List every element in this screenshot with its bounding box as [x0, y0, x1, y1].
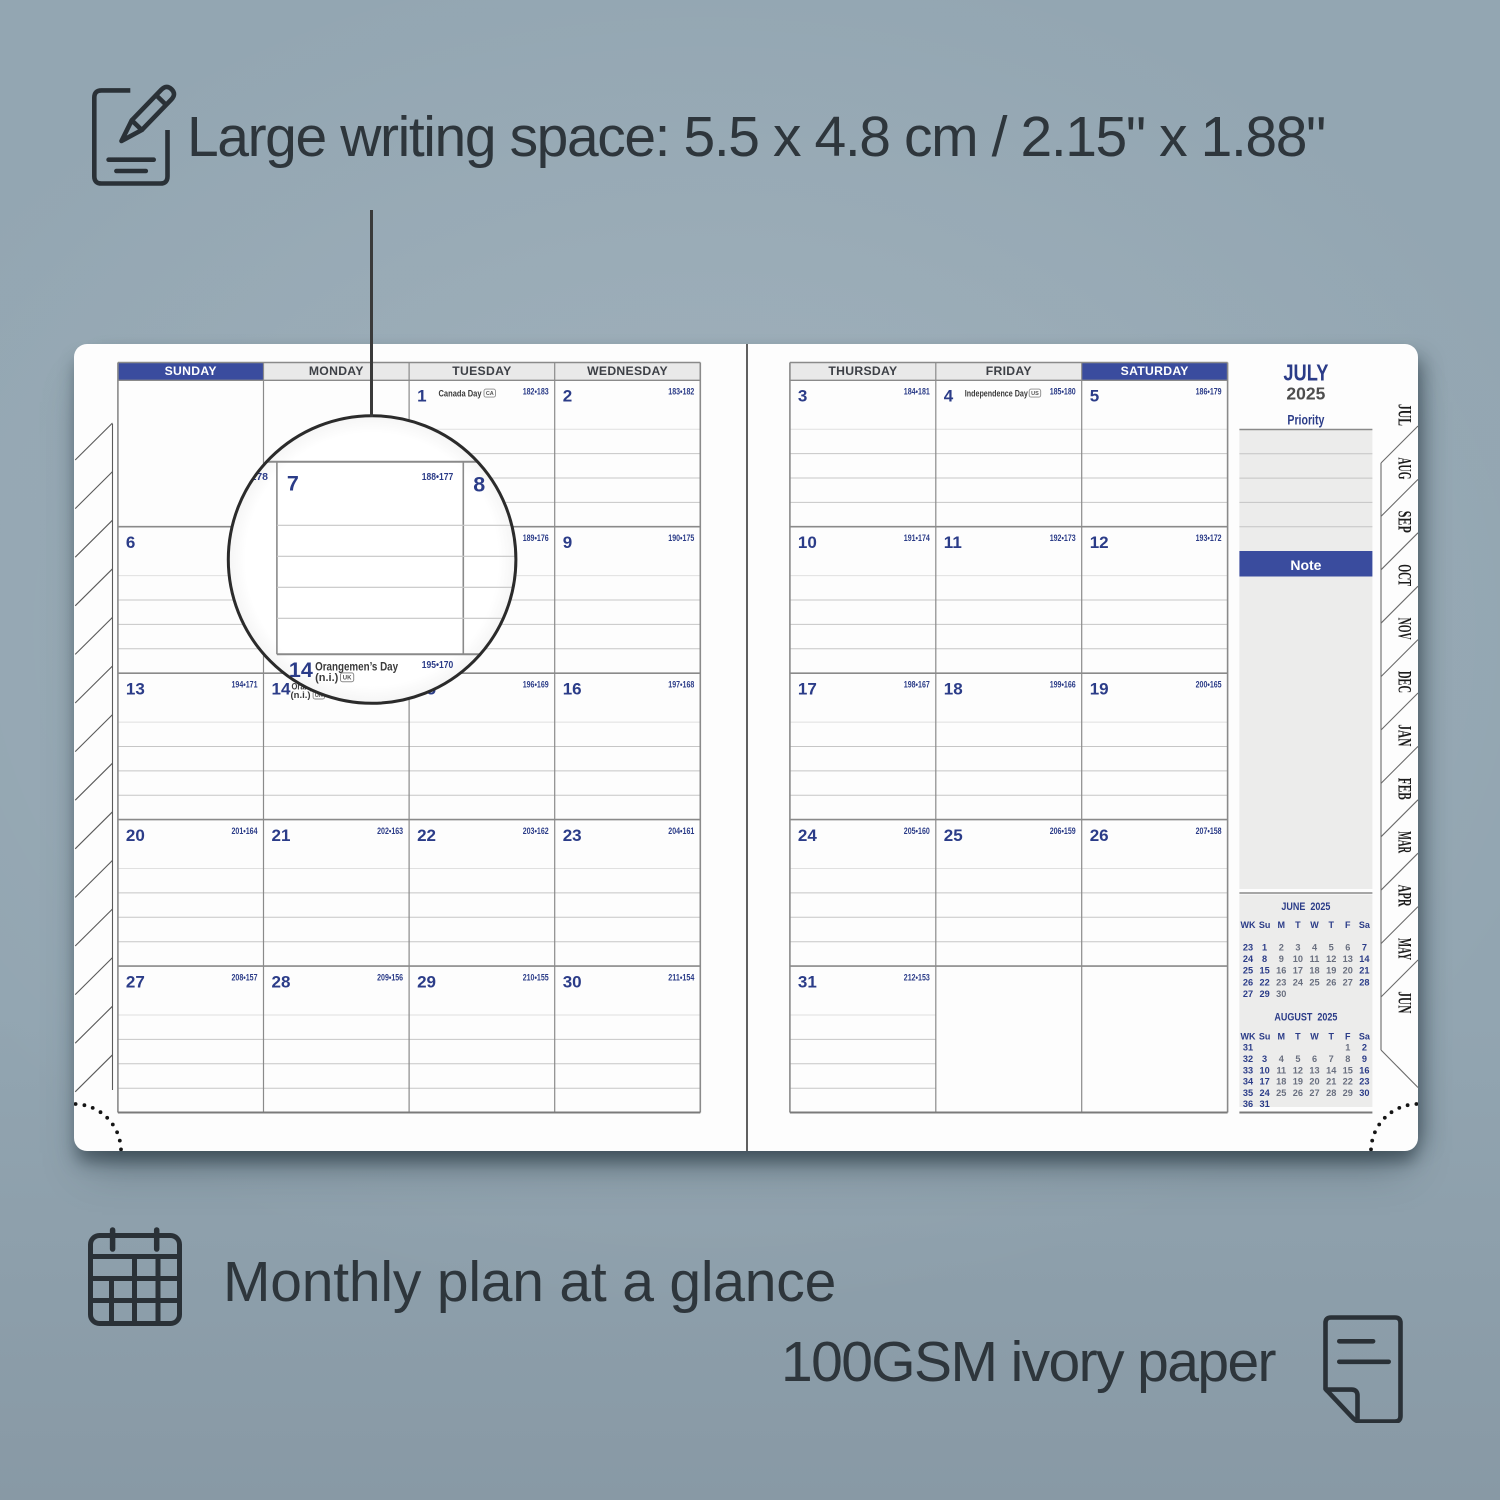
svg-text:189•176: 189•176: [523, 533, 549, 543]
svg-text:25: 25: [944, 826, 963, 845]
svg-text:27: 27: [126, 973, 145, 992]
svg-text:206•159: 206•159: [1050, 826, 1076, 836]
svg-text:182•183: 182•183: [523, 387, 549, 397]
svg-text:W: W: [1310, 920, 1319, 930]
svg-text:31: 31: [1259, 1099, 1269, 1109]
svg-text:30: 30: [1359, 1088, 1369, 1098]
svg-text:23: 23: [1276, 977, 1286, 987]
svg-text:15: 15: [1259, 966, 1269, 976]
svg-text:1: 1: [1345, 1043, 1350, 1053]
svg-text:19: 19: [1326, 966, 1336, 976]
svg-text:2: 2: [1279, 942, 1284, 952]
svg-text:202•163: 202•163: [377, 826, 403, 836]
svg-text:28: 28: [1326, 1088, 1336, 1098]
svg-text:JUN: JUN: [1394, 991, 1415, 1013]
svg-text:191•174: 191•174: [904, 533, 930, 543]
svg-text:M: M: [1278, 1032, 1286, 1042]
svg-text:TUESDAY: TUESDAY: [452, 364, 511, 378]
svg-text:22: 22: [1343, 1077, 1353, 1087]
svg-text:AUGUST 2025: AUGUST 2025: [1274, 1011, 1337, 1023]
svg-text:JUNE 2025: JUNE 2025: [1281, 901, 1330, 913]
svg-text:7: 7: [1362, 942, 1367, 952]
svg-text:190•175: 190•175: [668, 533, 694, 543]
svg-text:F: F: [1345, 920, 1351, 930]
svg-text:15: 15: [1343, 1065, 1353, 1075]
svg-text:19: 19: [1090, 680, 1109, 699]
svg-text:MAR: MAR: [1394, 831, 1415, 853]
svg-text:14: 14: [1359, 954, 1370, 964]
svg-text:WK: WK: [1241, 920, 1256, 930]
svg-text:200•165: 200•165: [1196, 680, 1222, 690]
svg-text:T: T: [1328, 920, 1334, 930]
svg-text:18: 18: [944, 680, 963, 699]
svg-text:6: 6: [1345, 942, 1350, 952]
svg-text:12: 12: [1090, 533, 1109, 552]
svg-text:32: 32: [1243, 1054, 1253, 1064]
svg-text:SEP: SEP: [1394, 511, 1415, 533]
svg-text:22: 22: [1259, 977, 1269, 987]
svg-text:195•170: 195•170: [422, 659, 454, 671]
svg-text:JUL: JUL: [1394, 404, 1415, 426]
svg-text:207•158: 207•158: [1196, 826, 1222, 836]
svg-text:184•181: 184•181: [904, 387, 930, 397]
svg-text:29: 29: [1343, 1088, 1353, 1098]
svg-text:23: 23: [563, 826, 582, 845]
svg-text:11: 11: [944, 533, 962, 552]
svg-text:19: 19: [1293, 1077, 1303, 1087]
svg-text:Note: Note: [1290, 557, 1321, 573]
svg-text:13: 13: [126, 680, 145, 699]
svg-text:34: 34: [1243, 1077, 1254, 1087]
svg-text:W: W: [1310, 1032, 1319, 1042]
svg-text:29: 29: [417, 973, 436, 992]
svg-text:10: 10: [1259, 1065, 1269, 1075]
svg-text:8: 8: [1262, 954, 1267, 964]
svg-text:T: T: [1295, 1032, 1301, 1042]
svg-text:1: 1: [417, 387, 426, 406]
svg-text:3: 3: [1262, 1054, 1267, 1064]
svg-text:16: 16: [1359, 1065, 1369, 1075]
svg-text:29: 29: [1259, 989, 1269, 999]
svg-text:CA: CA: [486, 391, 494, 397]
svg-text:SATURDAY: SATURDAY: [1121, 364, 1189, 378]
svg-text:203•162: 203•162: [523, 826, 549, 836]
svg-text:Su: Su: [1259, 920, 1271, 930]
svg-text:8: 8: [1345, 1054, 1350, 1064]
svg-text:24: 24: [1293, 977, 1304, 987]
svg-text:2: 2: [1362, 1043, 1367, 1053]
svg-text:199•166: 199•166: [1050, 680, 1076, 690]
svg-text:24: 24: [1243, 954, 1254, 964]
svg-text:22: 22: [417, 826, 436, 845]
svg-text:21: 21: [1326, 1077, 1336, 1087]
svg-text:20: 20: [1309, 1077, 1319, 1087]
svg-text:21: 21: [272, 826, 291, 845]
svg-text:193•172: 193•172: [1196, 533, 1222, 543]
svg-text:UK: UK: [343, 676, 352, 682]
svg-text:17: 17: [1259, 1077, 1269, 1087]
svg-text:23: 23: [1359, 1077, 1369, 1087]
svg-text:36: 36: [1243, 1099, 1253, 1109]
svg-text:10: 10: [798, 533, 817, 552]
svg-text:28: 28: [1359, 977, 1369, 987]
svg-text:1: 1: [1262, 942, 1267, 952]
svg-text:9: 9: [1362, 1054, 1367, 1064]
svg-text:31: 31: [798, 973, 817, 992]
svg-text:33: 33: [1243, 1065, 1253, 1075]
svg-text:25: 25: [1309, 977, 1319, 987]
svg-text:13: 13: [1309, 1065, 1319, 1075]
svg-text:WEDNESDAY: WEDNESDAY: [587, 364, 668, 378]
svg-text:9: 9: [563, 533, 572, 552]
svg-text:MAY: MAY: [1394, 938, 1415, 960]
svg-text:25: 25: [1243, 966, 1253, 976]
svg-text:35: 35: [1243, 1088, 1253, 1098]
svg-text:WK: WK: [1241, 1032, 1256, 1042]
svg-text:210•155: 210•155: [523, 972, 549, 982]
svg-text:14: 14: [1326, 1065, 1337, 1075]
svg-text:JULY: JULY: [1283, 359, 1328, 385]
svg-text:4: 4: [1312, 942, 1318, 952]
svg-text:SUNDAY: SUNDAY: [165, 364, 217, 378]
svg-text:209•156: 209•156: [377, 972, 403, 982]
svg-text:7: 7: [287, 472, 299, 496]
svg-text:OCT: OCT: [1394, 564, 1415, 586]
svg-text:27: 27: [1243, 989, 1253, 999]
svg-text:192•173: 192•173: [1050, 533, 1076, 543]
svg-text:3: 3: [798, 387, 807, 406]
svg-text:Canada Day: Canada Day: [439, 388, 483, 399]
svg-text:(n.i.): (n.i.): [315, 672, 339, 684]
svg-text:Sa: Sa: [1359, 920, 1371, 930]
svg-text:(n.i.): (n.i.): [291, 690, 311, 701]
svg-text:183•182: 183•182: [668, 387, 694, 397]
svg-text:M: M: [1278, 920, 1286, 930]
svg-text:Independence Day: Independence Day: [965, 388, 1028, 398]
svg-text:2: 2: [563, 387, 572, 406]
svg-text:FRIDAY: FRIDAY: [986, 364, 1032, 378]
svg-text:5: 5: [1295, 1054, 1300, 1064]
svg-text:31: 31: [1243, 1043, 1253, 1053]
svg-text:T: T: [1328, 1032, 1334, 1042]
svg-text:23: 23: [1243, 942, 1253, 952]
svg-text:5: 5: [1090, 387, 1099, 406]
svg-text:2025: 2025: [1286, 383, 1325, 403]
svg-text:17: 17: [798, 680, 817, 699]
svg-text:20: 20: [1343, 966, 1353, 976]
svg-text:186•179: 186•179: [1196, 387, 1222, 397]
svg-text:212•153: 212•153: [904, 972, 930, 982]
svg-text:20: 20: [126, 826, 145, 845]
svg-text:4: 4: [1279, 1054, 1285, 1064]
svg-text:6: 6: [1312, 1054, 1317, 1064]
svg-text:211•154: 211•154: [668, 972, 694, 982]
svg-text:8: 8: [473, 472, 485, 496]
svg-text:13: 13: [1343, 954, 1353, 964]
svg-text:18: 18: [1309, 966, 1319, 976]
svg-text:18: 18: [1276, 1077, 1286, 1087]
svg-text:27: 27: [1343, 977, 1353, 987]
svg-text:MONDAY: MONDAY: [309, 364, 364, 378]
svg-text:DEC: DEC: [1394, 671, 1415, 693]
svg-text:3: 3: [1295, 942, 1300, 952]
svg-text:T: T: [1295, 920, 1301, 930]
svg-text:21: 21: [1359, 966, 1369, 976]
svg-text:JAN: JAN: [1394, 724, 1415, 746]
svg-text:204•161: 204•161: [668, 826, 694, 836]
svg-text:17: 17: [1293, 966, 1303, 976]
svg-text:198•167: 198•167: [904, 680, 930, 690]
svg-text:F: F: [1345, 1032, 1351, 1042]
svg-text:NOV: NOV: [1394, 618, 1415, 640]
svg-text:11: 11: [1310, 954, 1320, 964]
svg-text:4: 4: [944, 387, 954, 406]
svg-text:Priority: Priority: [1287, 413, 1324, 428]
svg-text:201•164: 201•164: [232, 826, 258, 836]
svg-text:26: 26: [1243, 977, 1253, 987]
svg-text:16: 16: [563, 680, 582, 699]
svg-text:10: 10: [1293, 954, 1303, 964]
svg-text:APR: APR: [1394, 885, 1415, 907]
svg-text:27: 27: [1309, 1088, 1319, 1098]
svg-text:9: 9: [1279, 954, 1284, 964]
svg-text:196•169: 196•169: [523, 680, 549, 690]
svg-text:208•157: 208•157: [232, 972, 258, 982]
svg-text:5: 5: [1329, 942, 1334, 952]
svg-text:28: 28: [272, 973, 291, 992]
svg-text:THURSDAY: THURSDAY: [828, 364, 897, 378]
svg-text:AUG: AUG: [1394, 457, 1415, 479]
svg-text:26: 26: [1293, 1088, 1303, 1098]
svg-text:FEB: FEB: [1394, 778, 1415, 800]
svg-text:25: 25: [1276, 1088, 1286, 1098]
svg-text:11: 11: [1276, 1065, 1286, 1075]
svg-text:194•171: 194•171: [232, 680, 258, 690]
svg-text:30: 30: [563, 973, 582, 992]
svg-text:16: 16: [1276, 966, 1286, 976]
svg-text:14: 14: [272, 680, 291, 699]
svg-text:12: 12: [1326, 954, 1336, 964]
svg-text:24: 24: [798, 826, 817, 845]
svg-text:205•160: 205•160: [904, 826, 930, 836]
svg-text:7: 7: [1329, 1054, 1334, 1064]
svg-text:US: US: [1031, 391, 1039, 397]
svg-text:26: 26: [1326, 977, 1336, 987]
svg-text:Sa: Sa: [1359, 1032, 1371, 1042]
svg-text:185•180: 185•180: [1050, 387, 1076, 397]
svg-text:26: 26: [1090, 826, 1109, 845]
svg-text:24: 24: [1259, 1088, 1270, 1098]
svg-text:197•168: 197•168: [668, 680, 694, 690]
svg-text:12: 12: [1293, 1065, 1303, 1075]
svg-text:Su: Su: [1259, 1032, 1271, 1042]
svg-text:6: 6: [126, 533, 135, 552]
svg-text:30: 30: [1276, 989, 1286, 999]
svg-text:188•177: 188•177: [422, 471, 454, 483]
